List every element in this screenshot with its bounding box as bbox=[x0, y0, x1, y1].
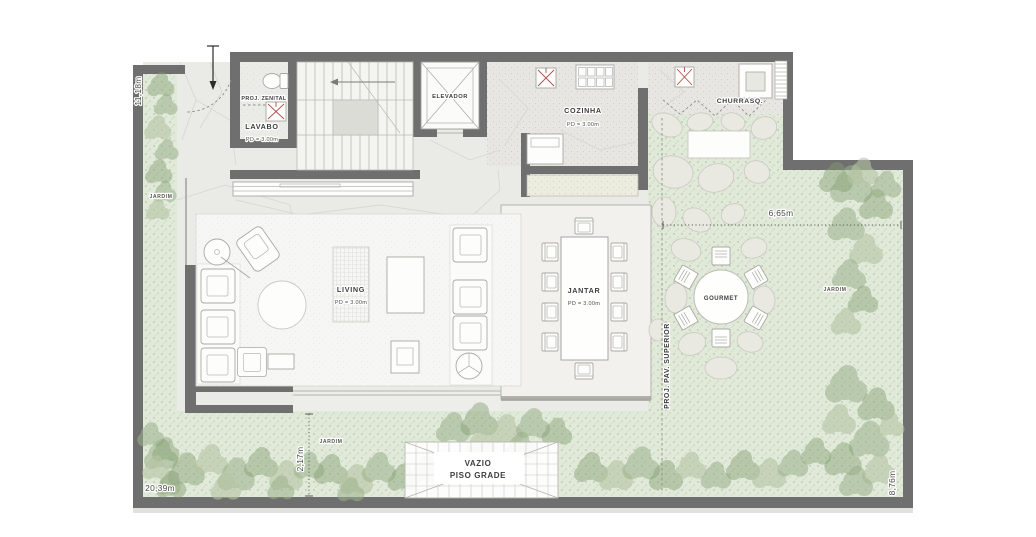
label-vazio-line2: PISO GRADE bbox=[450, 471, 506, 480]
label-gourmet: GOURMET bbox=[704, 296, 738, 302]
kitchen-sink-icon bbox=[536, 68, 556, 88]
kitchen-counter bbox=[527, 175, 638, 196]
label-lavabo: LAVABO bbox=[245, 122, 278, 131]
label-proj-zenital: PROJ. ZENITAL bbox=[241, 96, 287, 102]
kitchen-island bbox=[527, 134, 563, 164]
label-cozinha: COZINHA bbox=[564, 106, 602, 115]
label-jardim-left: JARDIM bbox=[150, 194, 173, 200]
dim-garden-width: 6,65m bbox=[769, 208, 794, 218]
dim-strip-depth: 2,17m bbox=[295, 447, 305, 472]
label-jardim-right: JARDIM bbox=[824, 287, 847, 293]
side-table bbox=[268, 354, 294, 369]
label-jardim-bottom: JARDIM bbox=[320, 439, 343, 445]
label-churrasqueira: CHURRASQ. bbox=[717, 98, 764, 105]
grill-icon bbox=[739, 64, 772, 98]
dim-left-height: 11,18m bbox=[133, 76, 143, 105]
label-jantar-pd: PD = 3.00m bbox=[568, 301, 600, 307]
label-vazio-line1: VAZIO bbox=[465, 459, 492, 468]
toilet-icon bbox=[263, 74, 288, 89]
right-armchairs bbox=[450, 225, 492, 385]
coffee-table bbox=[387, 257, 424, 313]
lavabo-sink-icon bbox=[266, 102, 286, 121]
dim-right-height: 8,76m bbox=[887, 471, 897, 496]
round-side-table bbox=[456, 353, 482, 379]
bbq-sink-icon bbox=[675, 67, 694, 87]
label-proj-pav-superior: PROJ. PAV. SUPERIOR bbox=[664, 323, 671, 409]
label-cozinha-pd: PD = 3.00m bbox=[567, 122, 599, 128]
round-pouf bbox=[258, 281, 306, 329]
tv-console bbox=[391, 341, 419, 373]
label-elevador: ELEVADOR bbox=[432, 94, 468, 100]
label-lavabo-pd: PD = 3.00m bbox=[246, 137, 278, 143]
dining-table bbox=[561, 237, 608, 360]
left-armchairs bbox=[197, 264, 240, 384]
void-grate-floor bbox=[405, 442, 558, 498]
garden-bench bbox=[688, 131, 750, 158]
label-living: LIVING bbox=[337, 285, 365, 294]
staircase bbox=[297, 62, 413, 170]
label-jantar: JANTAR bbox=[568, 286, 601, 295]
vent-hatch-icon bbox=[775, 61, 787, 99]
label-living-pd: PD = 3.00m bbox=[335, 300, 367, 306]
sideboard bbox=[233, 182, 413, 196]
dim-bottom-width: 20,39m bbox=[145, 483, 175, 493]
stove-icon bbox=[576, 65, 614, 89]
floor-plan-page: PROJ. ZENITAL LAVABO PD = 3.00m ELEVADOR… bbox=[0, 0, 1036, 537]
floor-plan-drawing: PROJ. ZENITAL LAVABO PD = 3.00m ELEVADOR… bbox=[0, 0, 1036, 537]
